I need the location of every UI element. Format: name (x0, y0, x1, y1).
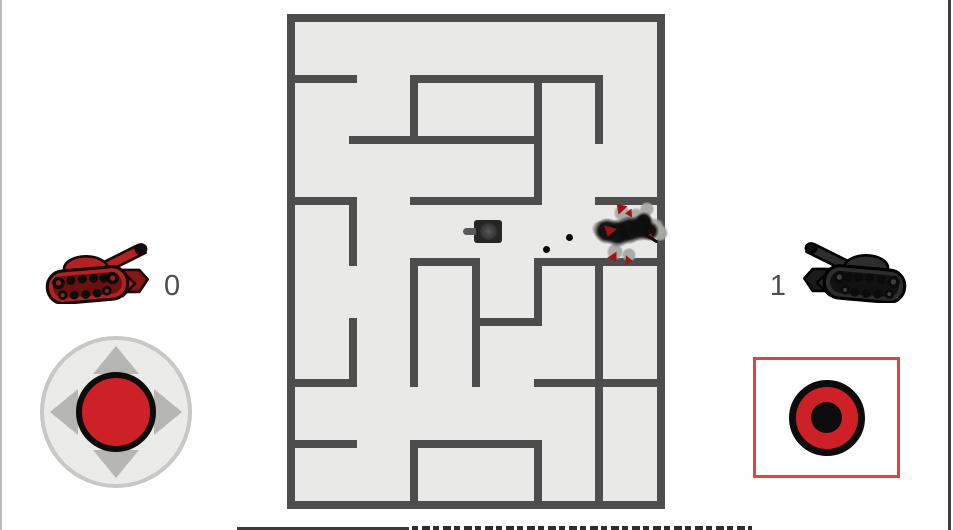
bullet (566, 234, 573, 241)
maze-wall (349, 136, 542, 144)
maze-wall (287, 14, 295, 509)
maze-wall (595, 75, 603, 144)
right-screen-edge (948, 0, 951, 530)
joystick-knob[interactable] (79, 375, 153, 449)
black-tank-turret (480, 223, 497, 240)
maze-wall (534, 440, 542, 509)
clipped-footer-text (412, 526, 752, 530)
black-tank-barrel (463, 228, 476, 235)
fire-button-panel (753, 357, 900, 478)
explosion-smoke (635, 212, 653, 230)
maze (287, 14, 665, 509)
maze-wall (287, 197, 357, 205)
maze-wall (410, 258, 418, 388)
red-tank-avatar (40, 238, 155, 304)
maze-wall (534, 75, 542, 205)
black-tank-avatar (797, 237, 912, 303)
maze-wall (410, 258, 480, 266)
maze-wall (349, 197, 357, 266)
clipped-footer-rule (237, 527, 409, 530)
game-stage: 0 1 (0, 0, 953, 530)
maze-wall (472, 318, 542, 326)
red-player-score: 0 (164, 272, 194, 301)
maze-wall (657, 14, 665, 509)
maze-wall (595, 197, 665, 205)
maze-wall (287, 14, 665, 22)
maze-wall (287, 379, 357, 387)
maze-wall (287, 501, 665, 509)
left-screen-edge (0, 0, 2, 530)
black-tank (474, 220, 502, 243)
maze-wall (534, 258, 542, 327)
bullet (543, 246, 550, 253)
maze-wall (410, 75, 418, 144)
fire-button[interactable] (789, 380, 865, 456)
maze-wall (410, 440, 418, 509)
maze-wall (472, 258, 480, 388)
movement-joystick[interactable] (38, 334, 194, 490)
black-player-score: 1 (756, 272, 786, 301)
maze-wall (287, 440, 357, 448)
maze-wall (410, 75, 603, 83)
maze-wall (410, 440, 541, 448)
maze-wall (595, 258, 603, 510)
fire-button-core-icon (811, 402, 842, 433)
maze-wall (410, 197, 541, 205)
maze-wall (287, 75, 357, 83)
maze-wall (349, 318, 357, 387)
